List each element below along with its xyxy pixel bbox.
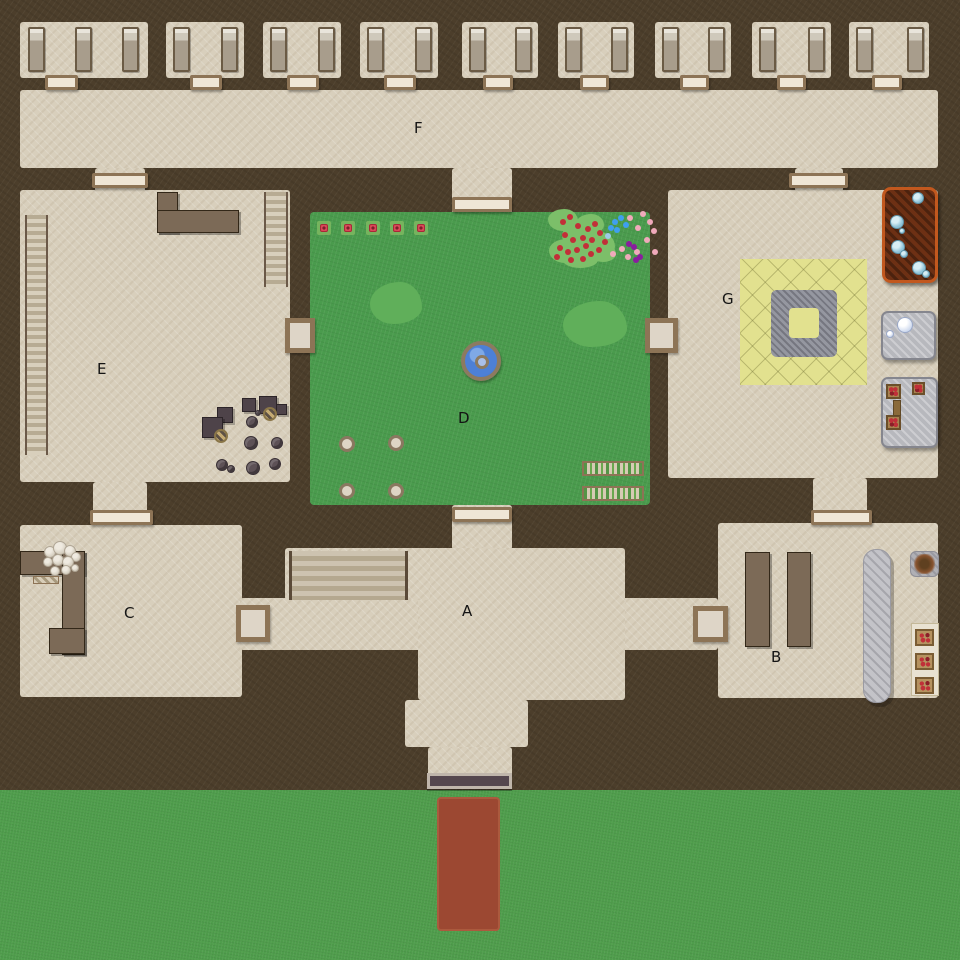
bed-icon xyxy=(221,27,238,72)
flower-icon xyxy=(570,237,576,243)
flower-icon xyxy=(589,237,595,243)
flower-icon xyxy=(575,223,581,229)
bed-icon xyxy=(469,27,486,72)
stone-seat-icon xyxy=(388,435,404,451)
water-bubble-icon xyxy=(922,270,930,278)
stool-icon xyxy=(269,458,281,470)
rose-tile-icon xyxy=(341,221,355,235)
bed-icon xyxy=(28,27,45,72)
table-icon xyxy=(745,552,770,647)
shelf-icon xyxy=(25,215,48,455)
food-table-icon xyxy=(886,415,901,430)
rose-flower-icon xyxy=(393,224,401,232)
bed-icon xyxy=(270,27,287,72)
food-plate-icon xyxy=(915,677,934,694)
flower-icon xyxy=(625,254,631,260)
stool-icon xyxy=(227,465,235,473)
flower-icon xyxy=(580,256,586,262)
bed-icon xyxy=(367,27,384,72)
flower-icon xyxy=(644,237,650,243)
bed-icon xyxy=(75,27,92,72)
counter-icon xyxy=(49,628,85,654)
stool-icon xyxy=(271,437,283,449)
food-plate-icon xyxy=(915,629,934,646)
stairs-icon xyxy=(264,192,288,287)
food-table-icon xyxy=(912,382,925,395)
bed-icon xyxy=(565,27,582,72)
flower-icon xyxy=(597,230,603,236)
table-icon xyxy=(276,404,287,415)
flower-icon xyxy=(618,215,624,221)
flower-icon xyxy=(612,219,618,225)
stool-icon xyxy=(255,410,261,416)
flower-icon xyxy=(610,251,616,257)
door-g-b-icon xyxy=(811,510,872,525)
bed-icon xyxy=(415,27,432,72)
sack-icon xyxy=(71,564,79,572)
bed-icon xyxy=(611,27,628,72)
flower-icon xyxy=(567,214,573,220)
fire-blotch-icon xyxy=(914,554,935,574)
gate-icon xyxy=(427,773,512,789)
lounge-mat-icon xyxy=(882,187,938,283)
fountain-core-icon xyxy=(475,355,489,369)
food-bar-icon xyxy=(893,400,901,416)
area-label-B: B xyxy=(771,650,789,666)
flower-icon xyxy=(562,232,568,238)
dorm-door-icon xyxy=(190,75,222,90)
rose-tile-icon xyxy=(414,221,428,235)
flower-icon xyxy=(623,222,629,228)
rose-flower-icon xyxy=(344,224,352,232)
bed-icon xyxy=(708,27,725,72)
flower-icon xyxy=(580,235,586,241)
entry-path-icon xyxy=(437,797,500,931)
flower-icon xyxy=(627,215,633,221)
map-canvas[interactable]: ABCDEFG xyxy=(0,0,960,960)
table-icon xyxy=(787,552,811,647)
fountain-icon xyxy=(461,341,501,381)
training-ring-hole xyxy=(789,308,819,338)
water-bubble-icon xyxy=(897,317,913,333)
dorm-door-icon xyxy=(483,75,513,90)
flower-icon xyxy=(602,239,608,245)
flower-icon xyxy=(647,219,653,225)
area-label-A: A xyxy=(462,604,480,620)
flower-icon xyxy=(568,257,574,263)
area-label-C: C xyxy=(124,606,142,622)
dorm-door-icon xyxy=(680,75,709,90)
water-bubble-icon xyxy=(886,330,894,338)
door-a-b-icon xyxy=(693,606,728,642)
stool-icon xyxy=(246,416,258,428)
floor-hall-a-body xyxy=(418,548,625,700)
runner-rug-icon xyxy=(863,549,891,703)
flower-icon xyxy=(619,246,625,252)
rose-tile-icon xyxy=(317,221,331,235)
training-ring-icon xyxy=(771,290,837,357)
bed-icon xyxy=(515,27,532,72)
water-bubble-icon xyxy=(900,250,908,258)
flower-icon xyxy=(651,228,657,234)
floor-corridor-f xyxy=(20,90,938,168)
area-label-F: F xyxy=(414,121,432,137)
flower-icon xyxy=(605,233,611,239)
flower-icon xyxy=(574,247,580,253)
water-bubble-icon xyxy=(912,192,924,204)
food-plate-icon xyxy=(915,653,934,670)
bed-icon xyxy=(662,27,679,72)
flower-icon xyxy=(592,221,598,227)
flower-icon xyxy=(631,244,637,250)
stone-seat-icon xyxy=(339,436,355,452)
door-f-g-icon xyxy=(789,173,848,188)
flower-icon xyxy=(565,249,571,255)
dorm-door-icon xyxy=(872,75,902,90)
flower-icon xyxy=(583,243,589,249)
counter-icon xyxy=(157,210,239,233)
bed-icon xyxy=(173,27,190,72)
rose-flower-icon xyxy=(369,224,377,232)
door-e-c-icon xyxy=(90,510,153,525)
bed-icon xyxy=(122,27,139,72)
bush-icon xyxy=(563,301,627,347)
stool-icon xyxy=(246,461,260,475)
door-f-e-icon xyxy=(92,173,148,188)
door-f-d-icon xyxy=(452,197,512,212)
flower-icon xyxy=(614,227,620,233)
door-d-g-icon xyxy=(645,318,678,353)
sack-icon xyxy=(50,566,60,576)
rose-tile-icon xyxy=(366,221,380,235)
area-label-E: E xyxy=(97,362,115,378)
flower-icon xyxy=(554,254,560,260)
area-label-D: D xyxy=(458,411,476,427)
bed-icon xyxy=(856,27,873,72)
rose-flower-icon xyxy=(320,224,328,232)
flower-icon xyxy=(635,225,641,231)
bush-icon xyxy=(370,282,422,324)
stone-seat-icon xyxy=(339,483,355,499)
flower-icon xyxy=(596,247,602,253)
sack-icon xyxy=(61,565,71,575)
dorm-door-icon xyxy=(45,75,78,90)
flower-icon xyxy=(633,257,639,263)
planter-icon xyxy=(582,486,644,501)
barrel-icon xyxy=(263,407,277,421)
table-icon xyxy=(242,398,256,412)
planter-icon xyxy=(582,461,644,476)
bed-icon xyxy=(759,27,776,72)
flower-icon xyxy=(585,226,591,232)
flower-icon xyxy=(652,249,658,255)
flower-icon xyxy=(557,245,563,251)
water-bubble-icon xyxy=(890,215,904,229)
stool-icon xyxy=(244,436,258,450)
stone-seat-icon xyxy=(388,483,404,499)
mat-icon xyxy=(33,576,59,584)
dorm-door-icon xyxy=(287,75,319,90)
door-e-d-icon xyxy=(285,318,315,353)
water-bubble-icon xyxy=(899,228,905,234)
rose-tile-icon xyxy=(390,221,404,235)
stairs-icon xyxy=(289,551,408,600)
bed-icon xyxy=(907,27,924,72)
fire-pit-icon xyxy=(910,551,939,577)
door-d-a-icon xyxy=(452,507,512,522)
bed-icon xyxy=(318,27,335,72)
flower-icon xyxy=(560,219,566,225)
dorm-door-icon xyxy=(580,75,609,90)
rose-flower-icon xyxy=(417,224,425,232)
bed-icon xyxy=(808,27,825,72)
dorm-door-icon xyxy=(777,75,806,90)
food-table-icon xyxy=(886,384,901,399)
area-label-G: G xyxy=(722,292,740,308)
door-c-a-icon xyxy=(236,605,270,642)
dorm-door-icon xyxy=(384,75,416,90)
flower-icon xyxy=(640,211,646,217)
barrel-icon xyxy=(214,429,228,443)
flower-icon xyxy=(588,251,594,257)
floor-hall-a-entry-flare xyxy=(405,700,528,747)
